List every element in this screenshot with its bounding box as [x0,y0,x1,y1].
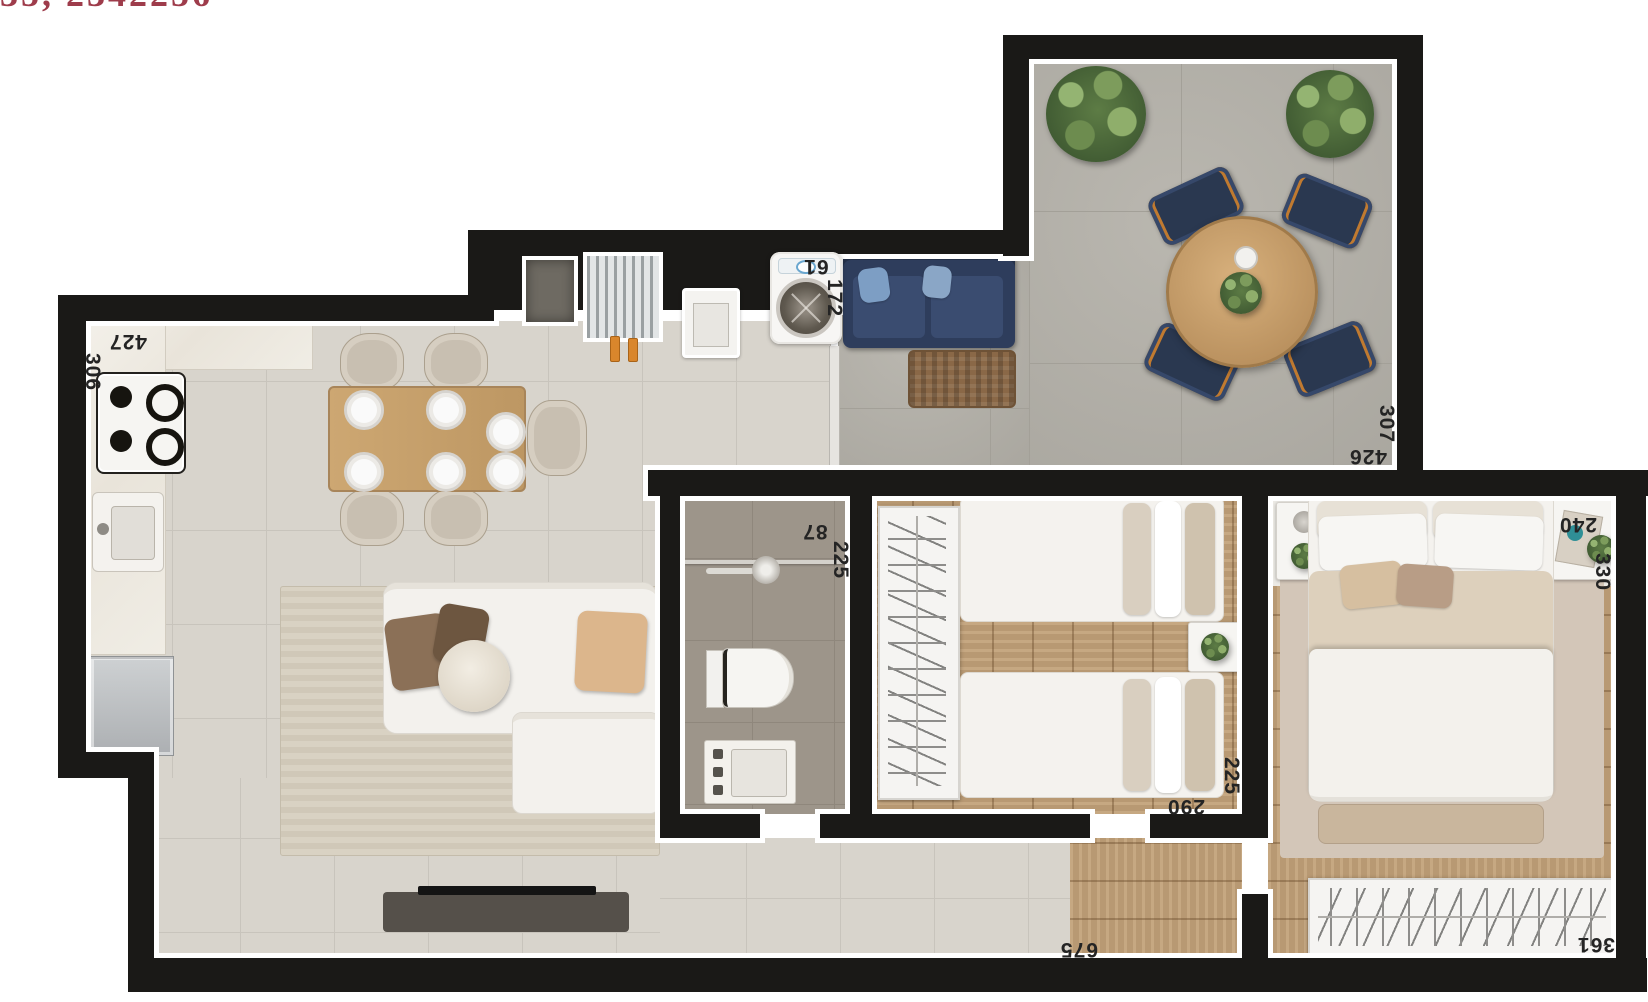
pillow [1434,513,1544,571]
shower-arm [706,568,754,574]
wall [850,470,872,838]
accent-cushion [1396,563,1455,609]
wall [1616,470,1646,992]
bed-blanket [1123,679,1151,791]
wall [1242,470,1268,838]
outdoor-sofa [843,252,1015,348]
rack-handle [628,338,638,362]
terrace-plant [1046,66,1146,162]
burner [110,430,132,452]
vanity-sink [731,749,787,797]
single-bed-1 [960,496,1224,622]
hanger-rail [1318,888,1606,946]
wall [1397,35,1423,496]
wall [648,470,1423,496]
bedroom2-nightstand [1188,622,1240,672]
dining-chair [424,488,488,546]
shower-head [752,556,780,584]
wall [1242,894,1268,958]
accent-cushion [1339,560,1405,610]
wall [128,958,1647,992]
wall [468,230,1029,254]
dim-bedroom2-horizontal: 290 [1167,794,1205,818]
dim-kitchen-vertical: 306 [80,353,104,391]
floor-living-east [660,838,1070,958]
sliding-glass-door [829,346,840,470]
burner [146,428,184,466]
service-shaft [522,256,578,326]
dining-armchair [527,400,587,476]
plate [486,452,526,492]
dim-master-horizontal: 240 [1559,512,1597,536]
wall [58,295,494,321]
wall [820,814,1090,838]
table-plant [1220,272,1262,314]
kitchen-faucet [97,523,109,535]
wall [660,470,680,838]
bed-pillow [1185,679,1215,791]
wall [1397,470,1648,496]
hanger-rail [888,516,946,786]
dim-terrace-vertical: 307 [1374,405,1398,443]
bed-blanket [1123,503,1151,615]
laundry-sink-basin [693,303,729,347]
kitchen-sink-basin [111,506,155,560]
master-wardrobe [1308,878,1620,960]
dim-master-vertical: 330 [1590,553,1614,591]
dim-bathroom-horizontal: 87 [802,519,827,543]
dim-living-horizontal: 675 [1060,937,1098,961]
plant-small [1201,633,1229,661]
dim-wardrobe-horizontal: 361 [1577,932,1615,956]
throw-blanket [574,610,648,694]
laundry-sink [682,288,740,358]
drying-rack [583,252,663,342]
round-pouf [438,640,510,712]
wall [1003,35,1423,59]
bed-pillow [1155,677,1181,793]
dim-bathroom-vertical: 225 [828,541,852,579]
plate [344,452,384,492]
tv-console [383,892,629,932]
outdoor-pillow [857,266,891,304]
wall [128,752,154,992]
tv [418,886,596,895]
cup [1234,246,1258,270]
burner [146,384,184,422]
bed-pillow [1155,501,1181,617]
dim-laundry-horizontal: 61 [803,254,828,278]
sofa-chaise [512,712,660,814]
wicker-ottoman [908,350,1016,408]
bathroom-vanity [704,740,796,804]
dim-bedroom2-vertical: 225 [1219,757,1243,795]
terrace-plant [1286,70,1374,158]
dining-chair [424,333,488,391]
single-bed-2 [960,672,1224,798]
rack-handle [610,336,620,362]
double-bed [1308,496,1554,802]
burner [110,386,132,408]
vanity-knob [713,749,723,759]
bedroom2-wardrobe [878,506,960,800]
vanity-knob [713,785,723,795]
outdoor-pillow [921,265,952,300]
toilet [722,648,794,708]
dim-kitchen-horizontal: 427 [109,329,147,353]
dining-chair [340,488,404,546]
vanity-knob [713,767,723,777]
cropped-watermark: 35, 2342256 [0,0,320,15]
floor-plan: 35, 2342256 [0,0,1648,1002]
dim-terrace-horizontal: 426 [1349,444,1387,468]
plate [344,390,384,430]
cropped-watermark-text: 35, 2342256 [0,0,320,15]
bed-throw [1309,649,1553,801]
dim-laundry-vertical: 172 [822,279,846,317]
cooktop [96,372,186,474]
kitchen-sink [92,492,164,572]
plate [486,412,526,452]
plate [426,452,466,492]
dining-chair [340,333,404,391]
wall [660,814,760,838]
wall [1003,35,1029,256]
plate [426,390,466,430]
refrigerator [90,656,174,756]
bed-bench [1318,804,1544,844]
bed-pillow [1185,503,1215,615]
